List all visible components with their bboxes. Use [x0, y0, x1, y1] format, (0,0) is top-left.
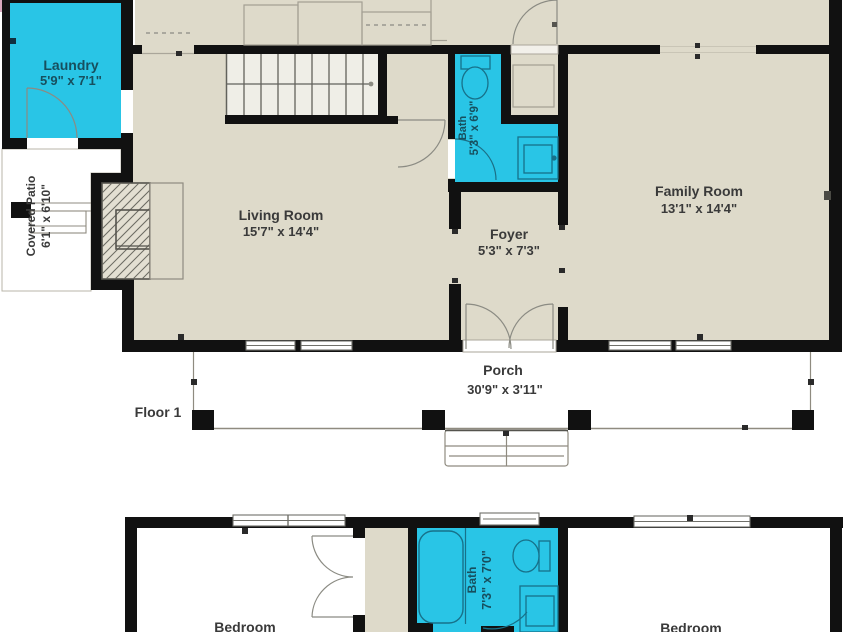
svg-text:Laundry: Laundry [43, 57, 98, 73]
svg-text:Floor 1: Floor 1 [135, 404, 182, 420]
svg-text:5'3" x 6'9": 5'3" x 6'9" [469, 101, 481, 156]
svg-text:Bath: Bath [465, 567, 479, 594]
svg-text:Family Room: Family Room [655, 183, 743, 199]
svg-text:15'7" x 14'4": 15'7" x 14'4" [243, 224, 319, 239]
svg-text:7'3" x 7'0": 7'3" x 7'0" [480, 550, 494, 610]
svg-text:6'1" x 6'10": 6'1" x 6'10" [39, 184, 53, 248]
svg-text:13'1" x 14'4": 13'1" x 14'4" [661, 201, 737, 216]
svg-text:30'9" x 3'11": 30'9" x 3'11" [467, 382, 543, 397]
svg-text:Covered Patio: Covered Patio [24, 176, 38, 257]
svg-text:Living Room: Living Room [239, 207, 324, 223]
svg-text:Bedroom: Bedroom [660, 620, 721, 632]
svg-text:5'3" x 7'3": 5'3" x 7'3" [478, 243, 540, 258]
svg-text:Bedroom: Bedroom [214, 619, 275, 632]
svg-text:Porch: Porch [483, 362, 523, 378]
svg-text:5'9" x 7'1": 5'9" x 7'1" [40, 73, 102, 88]
svg-text:Foyer: Foyer [490, 226, 529, 242]
svg-text:Bath: Bath [457, 116, 469, 141]
